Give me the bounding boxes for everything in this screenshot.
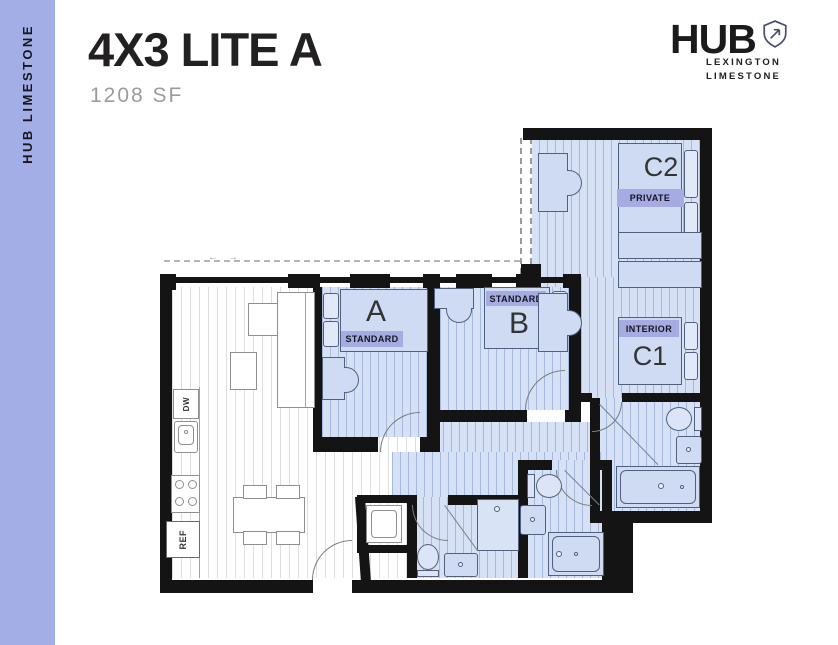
- shower-head: [494, 506, 500, 512]
- desk: [322, 357, 345, 400]
- room-a-badge: STANDARD: [341, 331, 403, 347]
- sofa-seam: [305, 293, 306, 407]
- wall: [423, 274, 440, 288]
- wardrobe: [618, 232, 702, 259]
- window-wall-dashed: [520, 138, 532, 274]
- stove-burner: [188, 497, 197, 506]
- logo-line2: LIMESTONE: [706, 71, 781, 82]
- toilet-tank: [417, 570, 439, 577]
- wall: [518, 460, 552, 470]
- wall: [523, 128, 712, 140]
- toilet-bowl: [417, 544, 439, 570]
- wall: [352, 580, 633, 593]
- bed-pillow: [684, 322, 698, 350]
- wall: [160, 580, 313, 593]
- sidebar-label: HUB LIMESTONE: [0, 24, 55, 164]
- desk: [538, 293, 568, 352]
- room-c1-badge: INTERIOR: [619, 320, 679, 337]
- toilet-bowl: [536, 474, 562, 498]
- shield-arrow-icon: [762, 20, 788, 48]
- wardrobe: [618, 261, 702, 288]
- room-b-label: B: [504, 306, 534, 342]
- window-arrow-right-icon: →: [228, 252, 238, 263]
- dining-chair: [243, 485, 267, 499]
- wall: [569, 277, 581, 422]
- wall: [516, 274, 530, 288]
- toilet-tank: [694, 407, 702, 431]
- kitchen-faucet: [184, 430, 188, 434]
- desk: [538, 153, 568, 212]
- hallway-floor: [427, 422, 590, 452]
- stove-burner: [175, 497, 184, 506]
- bed-pillow: [323, 293, 339, 319]
- room-b-badge: STANDARD: [486, 291, 546, 306]
- wall: [350, 274, 390, 288]
- laundry-unit-door: [371, 510, 397, 538]
- room-c1-label: C1: [632, 340, 668, 372]
- page-title: 4X3 LITE A: [88, 22, 322, 77]
- stove-burner: [188, 480, 197, 489]
- brand-logo-text: HUB: [670, 16, 756, 63]
- dining-chair: [276, 531, 300, 545]
- square-footage: 1208 SF: [90, 84, 183, 108]
- tub-drain: [574, 552, 578, 556]
- wall: [427, 287, 440, 452]
- sofa: [277, 292, 315, 408]
- dishwasher-label: DW: [173, 389, 199, 419]
- wall: [427, 410, 527, 422]
- logo-line1: LEXINGTON: [706, 57, 781, 68]
- coffee-table: [230, 352, 257, 390]
- wall: [456, 274, 492, 288]
- toilet-tank: [527, 474, 535, 498]
- dining-chair: [243, 531, 267, 545]
- window-arrow-left-icon: ←: [208, 252, 218, 263]
- tub-faucet: [556, 551, 562, 557]
- room-c2-label: C2: [638, 150, 684, 184]
- sink-drain: [686, 447, 691, 452]
- floorplan-page: HUB LIMESTONE 4X3 LITE A 1208 SF HUB LEX…: [0, 0, 838, 645]
- kitchen-sink-basin: [178, 425, 194, 445]
- bed-pillow: [684, 352, 698, 380]
- bed-pillow: [684, 150, 698, 198]
- sink-drain: [530, 517, 535, 522]
- bed-pillow: [323, 321, 339, 347]
- wall: [602, 460, 612, 523]
- wall: [602, 511, 633, 593]
- stove-burner: [175, 480, 184, 489]
- sink-drain: [458, 562, 463, 567]
- wall: [313, 437, 378, 452]
- tub-faucet: [658, 483, 664, 489]
- refrigerator-label: REF: [166, 521, 200, 558]
- dining-chair: [276, 485, 300, 499]
- toilet-bowl: [666, 407, 692, 431]
- room-c2-badge: PRIVATE: [617, 189, 683, 207]
- wall: [622, 393, 700, 402]
- room-a-label: A: [358, 294, 394, 330]
- sofa-chaise: [248, 303, 278, 336]
- sidebar-label-text: HUB LIMESTONE: [20, 24, 35, 164]
- wall: [700, 128, 712, 523]
- desk: [434, 288, 474, 309]
- tub-drain: [680, 485, 684, 489]
- wall: [288, 274, 320, 288]
- dining-table: [233, 497, 305, 533]
